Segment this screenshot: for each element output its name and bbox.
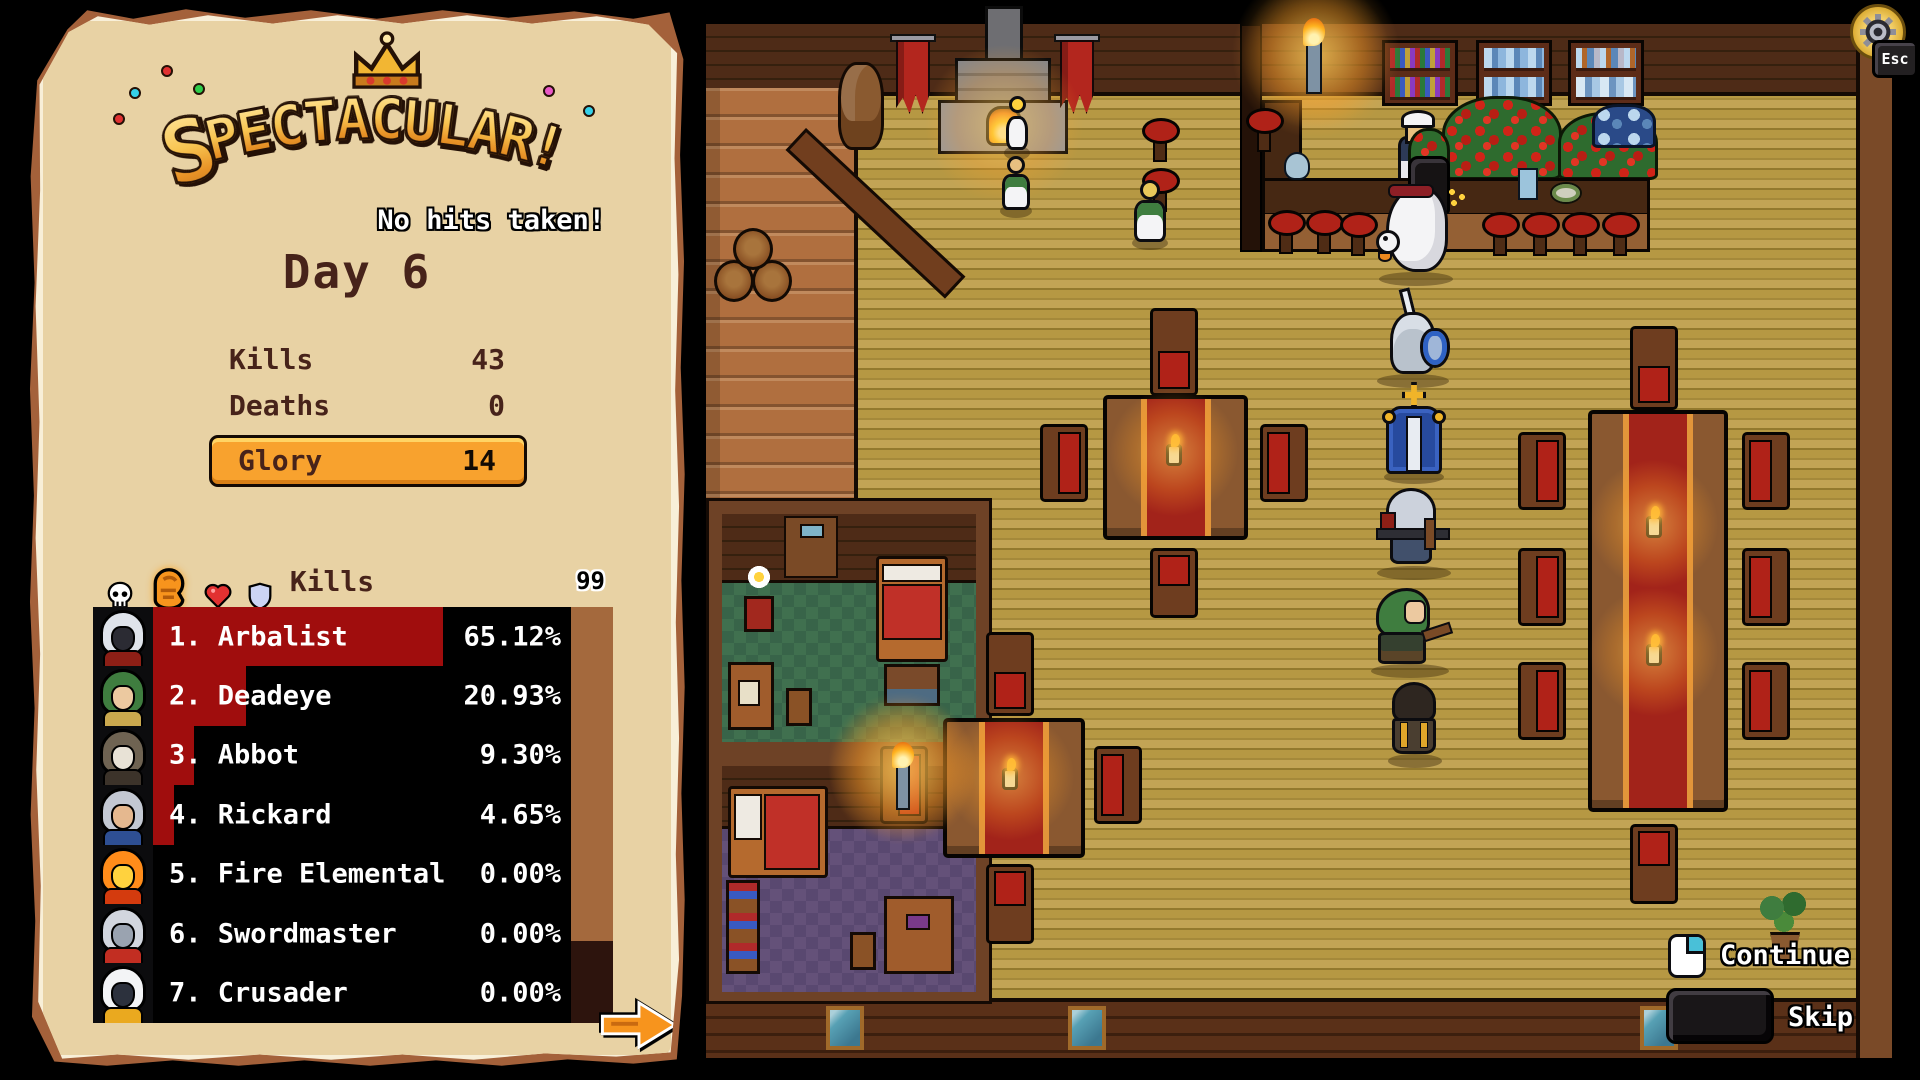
kill-percent: 20.93% [463, 681, 561, 712]
chair [1094, 746, 1142, 824]
panel-torn-edge: SPECTACULAR! No hits taken! Day 6 Kills … [33, 11, 681, 1065]
chair [1742, 548, 1790, 626]
mug [1518, 168, 1538, 200]
bottle-shelf [1382, 40, 1458, 106]
stat-kills: Kills 43 [229, 343, 505, 377]
candle [1646, 516, 1662, 538]
glory-value: 14 [462, 438, 496, 484]
chair [1518, 662, 1566, 740]
staircase [706, 88, 858, 518]
kill-percent: 9.30% [480, 740, 561, 771]
character-name: 6. Swordmaster [169, 918, 397, 949]
bed-chest [884, 664, 940, 706]
bar-stool [1602, 212, 1634, 254]
bed-pillow [882, 564, 942, 582]
esc-label: Esc [1881, 50, 1908, 68]
mixed-shelf [1568, 40, 1644, 106]
kill-percent: 0.00% [480, 859, 561, 890]
plant-leaves [1758, 890, 1810, 936]
board-row: 4. Rickard4.65% [93, 785, 571, 844]
dresser-paper [738, 680, 760, 706]
board-row: 7. Crusader0.00% [93, 963, 571, 1022]
chair [986, 632, 1034, 716]
npc-deadeye [1366, 586, 1454, 674]
gem-icon [543, 85, 555, 97]
gem-icon [161, 65, 173, 77]
npc-tavern-maid [998, 156, 1034, 214]
kill-percent: 4.65% [480, 799, 561, 830]
glory-badge: Glory 14 [209, 435, 527, 487]
rose-pile [1442, 96, 1562, 180]
dining-table [1103, 395, 1248, 540]
gem-icon [113, 113, 125, 125]
window [1068, 1006, 1106, 1050]
chair [1742, 432, 1790, 510]
stat-value: 0 [488, 389, 505, 422]
character-name: 1. Arbalist [169, 621, 348, 652]
results-panel: SPECTACULAR! No hits taken! Day 6 Kills … [28, 6, 686, 1070]
continue-label: Continue [1720, 940, 1850, 971]
bar-stool [1306, 210, 1338, 252]
spacebar-key-icon [1666, 988, 1774, 1044]
npc-crusader [1380, 386, 1448, 480]
mouse-icon [1668, 934, 1706, 978]
board-header: Kills [93, 565, 571, 598]
game-screen: Continue Skip Esc [0, 0, 1920, 1080]
npc-chick [1002, 94, 1032, 156]
stat-label: Deaths [229, 389, 330, 422]
scrollbar-thumb[interactable] [571, 607, 613, 941]
npc-goose [1374, 178, 1458, 282]
kill-percent: 65.12% [463, 621, 561, 652]
wall-torch [1306, 42, 1322, 94]
chair [1040, 424, 1088, 502]
bar-stool [1268, 210, 1300, 252]
bookshelf [726, 880, 760, 974]
portrait-swordmaster [93, 904, 153, 963]
portrait-deadeye [93, 666, 153, 725]
chair [1150, 308, 1198, 396]
chair [1518, 548, 1566, 626]
barrel [733, 228, 773, 270]
bar-stool [1246, 108, 1278, 150]
skip-button[interactable]: Skip [1666, 988, 1866, 1048]
blue-tankards [1592, 104, 1656, 148]
character-name: 4. Rickard [169, 799, 332, 830]
board-row: 3. Abbot9.30% [93, 726, 571, 785]
chair [1630, 824, 1678, 904]
door-window [800, 524, 824, 538]
npc-barmaid [1130, 180, 1170, 246]
bar-stool [1482, 212, 1514, 254]
kills-counter: 99 [576, 567, 605, 595]
chair [986, 864, 1034, 944]
portrait-crusader [93, 963, 153, 1022]
continue-button[interactable]: Continue [1668, 932, 1868, 980]
bar-stool [1142, 118, 1174, 160]
stool-small [786, 688, 812, 726]
kill-board: 1. Arbalist65.12%2. Deadeye20.93%3. Abbo… [93, 607, 571, 1023]
board-row: 5. Fire Elemental0.00% [93, 845, 571, 904]
panel-parchment: SPECTACULAR! No hits taken! Day 6 Kills … [43, 21, 671, 1055]
bar-stool [1562, 212, 1594, 254]
npc-arbalist [1372, 486, 1456, 576]
candle [1646, 644, 1662, 666]
candle [1002, 768, 1018, 790]
stat-deaths: Deaths 0 [229, 389, 505, 423]
skip-label: Skip [1788, 1002, 1853, 1033]
torch-flame [892, 742, 914, 768]
stat-value: 43 [471, 343, 505, 376]
table-cloth [906, 914, 930, 930]
bed-blanket [882, 584, 942, 640]
portrait-rickard [93, 785, 153, 844]
candle [1166, 444, 1182, 466]
board-row: 6. Swordmaster0.00% [93, 904, 571, 963]
window [826, 1006, 864, 1050]
long-table [1588, 410, 1728, 812]
portrait-arbalist [93, 607, 153, 666]
character-name: 2. Deadeye [169, 681, 332, 712]
wall-torch [896, 764, 910, 810]
tavern-top-wall [706, 24, 1892, 96]
kill-percent: 0.00% [480, 978, 561, 1009]
board-scrollbar [571, 607, 613, 1023]
plate [1550, 182, 1582, 204]
chair [1150, 548, 1198, 618]
teapot [1284, 152, 1310, 180]
npc-swordmaster [1372, 298, 1454, 384]
portrait-fire-elemental [93, 845, 153, 904]
stool-small [850, 932, 876, 970]
board-row: 2. Deadeye20.93% [93, 666, 571, 725]
npc-abbot [1384, 682, 1446, 764]
board-row: 1. Arbalist65.12% [93, 607, 571, 666]
character-name: 3. Abbot [169, 740, 299, 771]
esc-key-icon: Esc [1872, 40, 1918, 78]
torch-flame [1303, 18, 1325, 46]
gem-icon [193, 83, 205, 95]
stat-label: Kills [229, 343, 313, 376]
flower-pot [744, 596, 774, 632]
glory-label: Glory [238, 438, 322, 484]
kill-percent: 0.00% [480, 918, 561, 949]
next-page-button[interactable] [599, 997, 677, 1053]
mounted-trophy [838, 62, 884, 150]
bar-stool [1522, 212, 1554, 254]
bar-stool [1340, 212, 1372, 254]
portrait-abbot [93, 726, 153, 785]
bed-blanket [764, 794, 820, 870]
chair [1260, 424, 1308, 502]
tavern-right-wall [1856, 24, 1892, 1058]
gem-icon [129, 87, 141, 99]
gem-icon [583, 105, 595, 117]
side-table [884, 896, 954, 974]
esc-menu-button[interactable]: Esc [1848, 2, 1920, 82]
chair [1518, 432, 1566, 510]
chair [1630, 326, 1678, 410]
character-name: 7. Crusader [169, 978, 348, 1009]
day-title: Day 6 [43, 245, 671, 299]
character-name: 5. Fire Elemental [169, 859, 445, 890]
bed-pillow [734, 794, 762, 840]
subtitle: No hits taken! [377, 205, 605, 236]
chair [1742, 662, 1790, 740]
flower [748, 566, 770, 588]
crown-icon [343, 31, 431, 97]
